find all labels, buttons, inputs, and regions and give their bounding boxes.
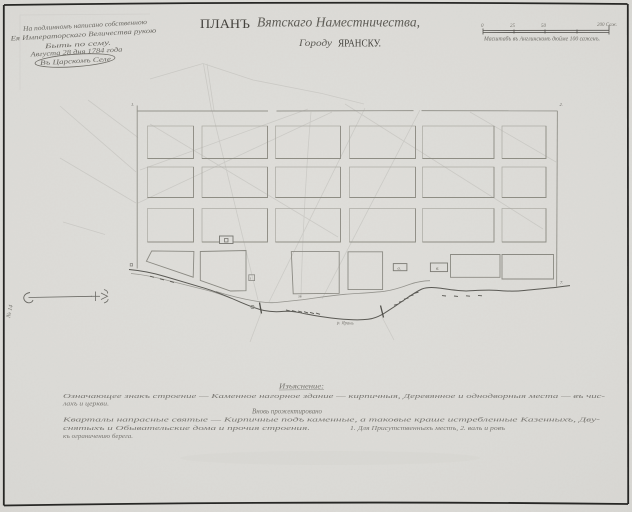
svg-text:50: 50 [541,24,547,29]
svg-text:р. Ярань: р. Ярань [336,320,354,326]
svg-text:200 Саж.: 200 Саж. [597,23,618,28]
svg-text:1.: 1. [131,102,134,107]
svg-text:лахъ и церкви.: лахъ и церкви. [62,401,110,408]
svg-text:Означающее знакъ строение — Ка: Означающее знакъ строение — Каменное наг… [63,393,605,400]
svg-text:1. Для Присутственныхъ местъ,: 1. Для Присутственныхъ местъ, 2. валъ и … [350,425,506,432]
svg-text:7.: 7. [560,280,563,285]
svg-text:25: 25 [510,24,516,29]
svg-text:зв: зв [298,294,302,299]
svg-text:Вновь прожектировано: Вновь прожектировано [252,408,322,416]
svg-text:Вятскаго Наместничества,: Вятскаго Наместничества, [257,15,420,30]
svg-text:Кварталы напрасные святые — Ки: Кварталы напрасные святые — Кирпичные по… [61,417,600,424]
svg-text:2.: 2. [560,102,563,107]
svg-text:Городу: Городу [298,38,332,48]
svg-text:ЯРАНСКУ.: ЯРАНСКУ. [338,39,381,50]
svg-text:къ ограничению берега.: къ ограничению берега. [63,433,133,440]
svg-text:б.: б. [436,266,439,271]
svg-text:а.: а. [398,266,401,271]
svg-text:снятыхъ и Обывательские дома и: снятыхъ и Обывательские дома и прочия ст… [63,425,311,432]
svg-text:Масштабъ въ Англинскомъ дюйме: Масштабъ въ Англинскомъ дюйме 100 саженъ… [483,36,600,43]
svg-text:ПЛАНЪ: ПЛАНЪ [200,16,250,31]
svg-text:Изъяснение:: Изъяснение: [278,383,324,391]
